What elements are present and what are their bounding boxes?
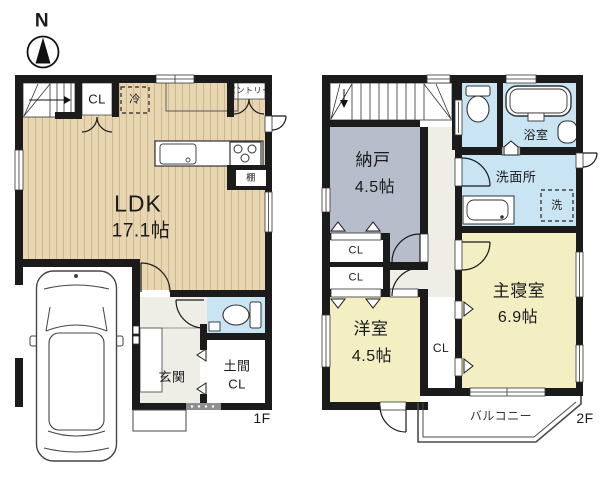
western-room-name-label: 洋室 — [354, 321, 389, 338]
master-bedroom-size-label: 6.9帖 — [498, 310, 538, 326]
entrance-label: 玄関 — [158, 371, 185, 384]
pantry-label: パントリー — [228, 87, 271, 95]
stairs-2f-icon — [330, 83, 452, 120]
stove-icon — [230, 142, 261, 166]
floor-plan: N CL 冷 パントリー 棚 LDK 17.1帖 玄関 土間 CL 1F 納戸 … — [0, 0, 615, 480]
western-room-size-label: 4.5帖 — [352, 349, 392, 365]
bathroom-label: 浴室 — [523, 129, 548, 141]
washroom-label: 洗面所 — [496, 171, 537, 184]
kitchen-sink-icon — [160, 144, 196, 164]
floor1-label: 1F — [253, 411, 270, 425]
closet-upper-label: CL — [348, 246, 363, 257]
doma-closet-label-1: 土間 — [223, 360, 250, 373]
ldk-size-label: 17.1帖 — [112, 222, 170, 241]
floor2-label: 2F — [576, 411, 593, 425]
stairs-1f-icon — [23, 83, 75, 117]
north-compass-icon — [28, 37, 59, 68]
porch-step — [133, 410, 186, 431]
closet-1f-label: CL — [88, 93, 106, 106]
doma-closet-label-2: CL — [228, 378, 246, 391]
balcony-label: バルコニー — [470, 410, 532, 422]
kitchen-counter-icon — [155, 141, 263, 166]
washbasin-icon — [463, 196, 514, 224]
laundry-label: 洗 — [551, 201, 563, 212]
refrigerator-label: 冷 — [129, 95, 141, 106]
closet-lower-label: CL — [348, 273, 363, 284]
hall-closet-label: CL — [433, 342, 449, 354]
floor-plan-drawing — [0, 0, 615, 480]
storage-size-label: 4.5帖 — [355, 180, 395, 196]
master-bedroom-name-label: 主寝室 — [493, 283, 546, 300]
shelf-label: 棚 — [246, 174, 256, 183]
compass-north-label: N — [35, 12, 49, 31]
toilet-2f-icon — [466, 86, 490, 122]
car-icon — [30, 271, 123, 461]
storage-name-label: 納戸 — [356, 152, 391, 169]
ldk-name-label: LDK — [114, 193, 162, 216]
